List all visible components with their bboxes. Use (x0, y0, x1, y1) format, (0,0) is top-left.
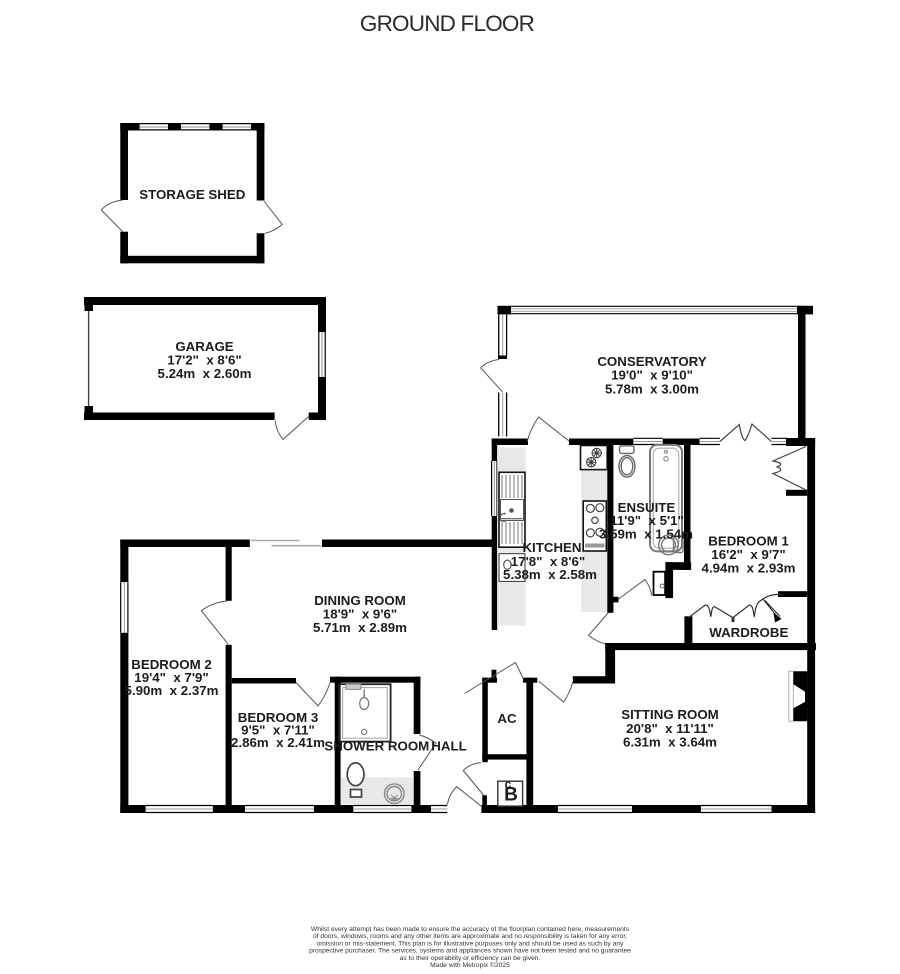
svg-text:omission or mis-statement. Thi: omission or mis-statement. This plan is … (317, 940, 625, 947)
svg-text:SHOWER ROOM: SHOWER ROOM (324, 739, 429, 754)
svg-text:5.24m x 2.60m: 5.24m x 2.60m (158, 366, 252, 381)
svg-text:SITTING ROOM: SITTING ROOM (621, 707, 719, 722)
svg-text:5.78m x 3.00m: 5.78m x 3.00m (605, 381, 699, 396)
svg-text:Made with Metropix ©2025: Made with Metropix ©2025 (430, 961, 510, 969)
svg-text:HALL: HALL (431, 739, 466, 754)
svg-text:AC: AC (497, 711, 517, 726)
svg-text:5.38m x 2.58m: 5.38m x 2.58m (503, 567, 597, 582)
svg-text:6.31m x 3.64m: 6.31m x 3.64m (623, 735, 717, 750)
svg-text:KITCHEN: KITCHEN (522, 540, 581, 555)
svg-text:GROUND FLOOR: GROUND FLOOR (360, 11, 535, 36)
svg-text:5.90m x 2.37m: 5.90m x 2.37m (125, 683, 219, 698)
svg-text:c: c (505, 777, 512, 791)
svg-text:3.59m x 1.54m: 3.59m x 1.54m (599, 527, 693, 542)
svg-text:2.86m x 2.41m: 2.86m x 2.41m (231, 735, 325, 750)
svg-text:11'9" x 5'1": 11'9" x 5'1" (610, 513, 684, 528)
svg-text:5.71m x 2.89m: 5.71m x 2.89m (313, 620, 407, 635)
svg-text:Whilst every attempt has been: Whilst every attempt has been made to en… (311, 926, 630, 933)
svg-text:of doors, windows, rooms and a: of doors, windows, rooms and any other i… (313, 933, 627, 940)
svg-text:WARDROBE: WARDROBE (709, 625, 788, 640)
svg-text:as to their operability or eff: as to their operability or efficiency ca… (400, 955, 541, 962)
svg-text:STORAGE SHED: STORAGE SHED (139, 187, 246, 202)
svg-text:4.94m x 2.93m: 4.94m x 2.93m (702, 561, 796, 576)
svg-text:prospective purchaser. The ser: prospective purchaser. The services, sys… (309, 948, 631, 955)
